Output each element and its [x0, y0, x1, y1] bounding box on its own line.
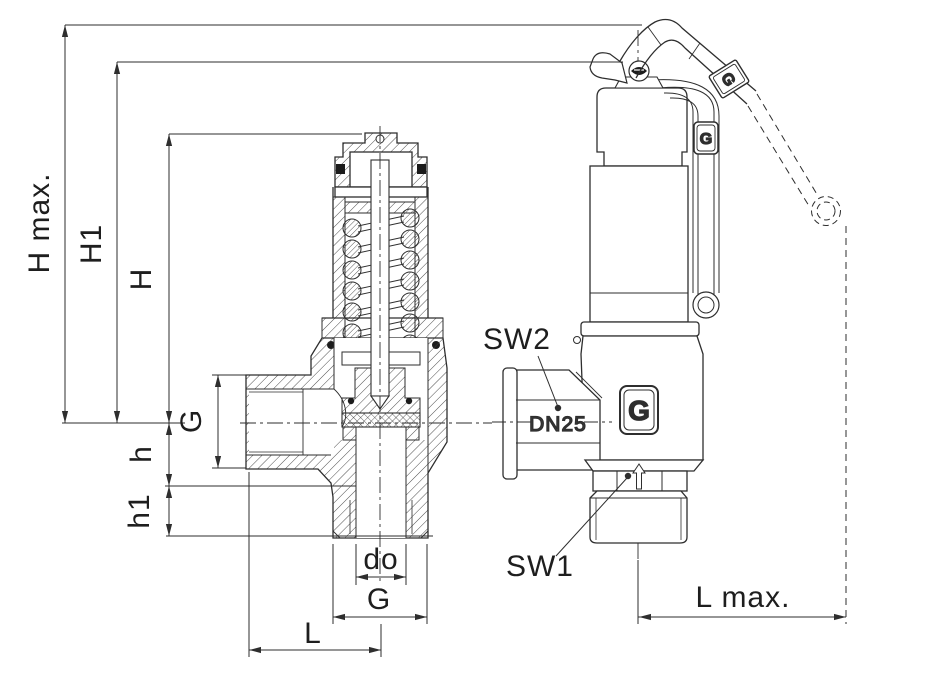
label-h-lower: h — [125, 445, 158, 463]
seal-disc — [342, 413, 420, 427]
flange-right — [415, 318, 443, 338]
left-valve-section-view — [240, 126, 492, 584]
safety-valve-drawing: G DN25 — [0, 0, 930, 700]
outlet-bore — [356, 427, 406, 538]
inlet-bore — [249, 389, 334, 455]
vent-hole — [574, 337, 581, 344]
right-bonnet-body — [590, 166, 688, 322]
label-h-upper: H — [125, 268, 158, 291]
label-g-inlet: G — [175, 409, 208, 433]
label-sw1: SW1 — [506, 550, 574, 583]
seat-ring-right — [406, 427, 419, 440]
logo-letter-strap: G — [700, 131, 712, 148]
disc-oring-right — [406, 398, 412, 404]
cap-seal-right — [417, 164, 426, 174]
cap-seal-left — [336, 164, 345, 174]
logo-badge-lever: G — [709, 59, 750, 98]
lever-arm-phantom-outer — [757, 94, 818, 196]
logo-letter-housing: G — [628, 395, 650, 426]
flange-left — [322, 318, 345, 338]
label-sw2: SW2 — [483, 323, 551, 356]
right-valve-side-view: G DN25 — [492, 20, 841, 600]
label-h-max: H max. — [23, 172, 56, 273]
right-cap — [597, 88, 687, 166]
disc-oring-left — [348, 398, 354, 404]
label-h1-lower: h1 — [123, 493, 156, 528]
right-flange — [581, 322, 699, 336]
bonnet-wall-left — [333, 197, 345, 318]
dimension-arrowheads — [62, 25, 846, 653]
leader-dot-sw1 — [625, 473, 631, 479]
label-h1-upper: H1 — [75, 224, 108, 264]
dimensions — [62, 25, 846, 657]
lever-ring-inner — [817, 202, 835, 220]
outlet-spigot — [590, 491, 687, 543]
leader-dot-sw2 — [555, 405, 561, 411]
label-g-outlet: G — [367, 583, 391, 616]
label-l: L — [304, 617, 322, 650]
dn-marking: DN25 — [529, 413, 587, 436]
label-do: do — [363, 543, 398, 576]
seat-ring-left — [343, 427, 356, 440]
lever-arm-phantom-inner — [748, 106, 809, 206]
inlet-face-plate — [503, 368, 517, 479]
housing-shoulder — [585, 460, 703, 471]
lever-ring-outer — [812, 197, 841, 226]
technical-drawing-page: G DN25 — [0, 0, 930, 700]
label-l-max: L max. — [696, 581, 791, 614]
